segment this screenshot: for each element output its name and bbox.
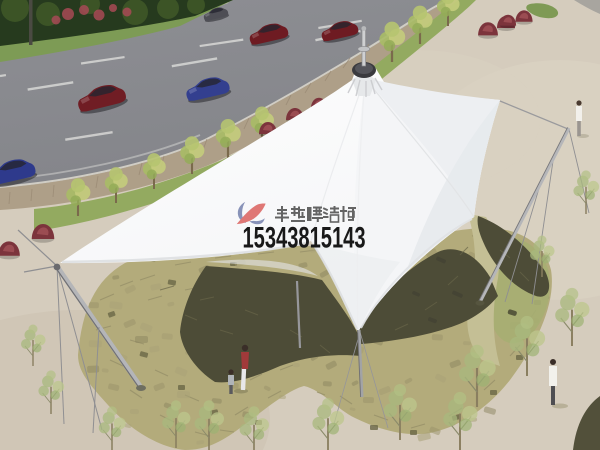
svg-text:15343815143: 15343815143 (243, 222, 366, 255)
